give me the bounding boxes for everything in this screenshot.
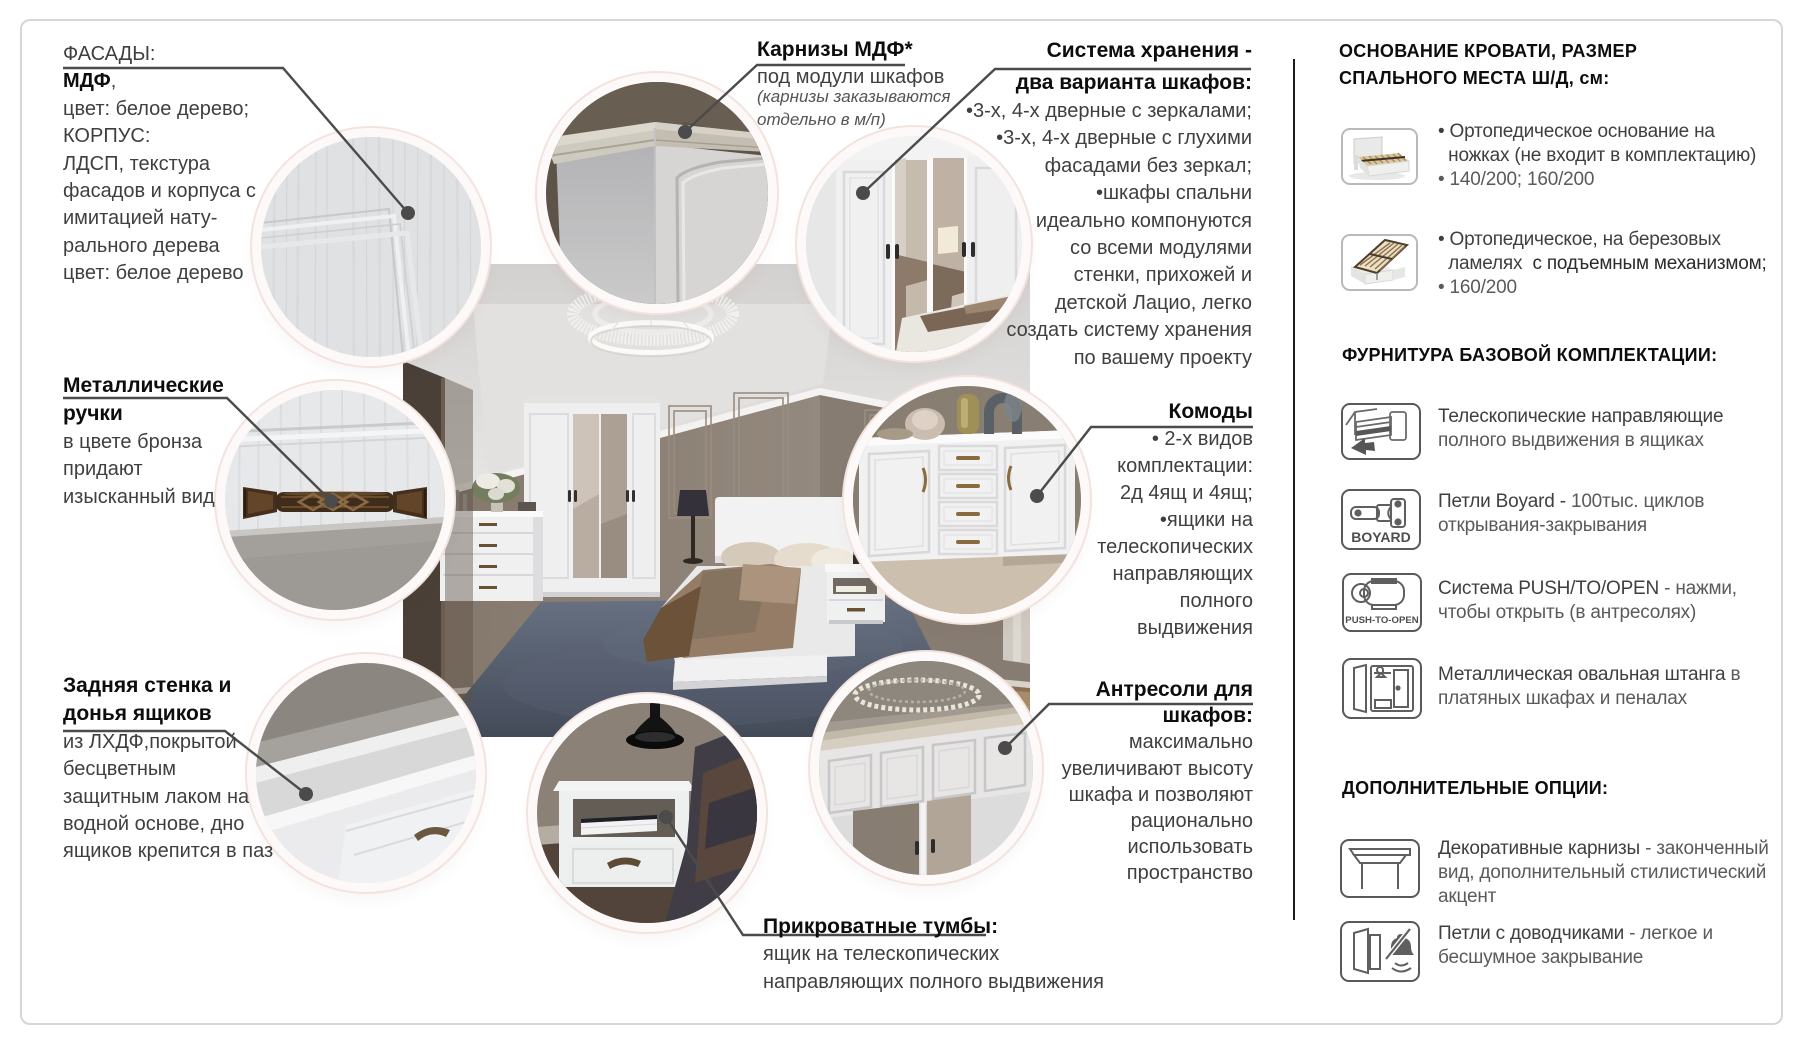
svg-text:PUSH-TO-OPEN: PUSH-TO-OPEN [1345, 615, 1418, 626]
svg-text:BOYARD: BOYARD [1351, 529, 1410, 545]
